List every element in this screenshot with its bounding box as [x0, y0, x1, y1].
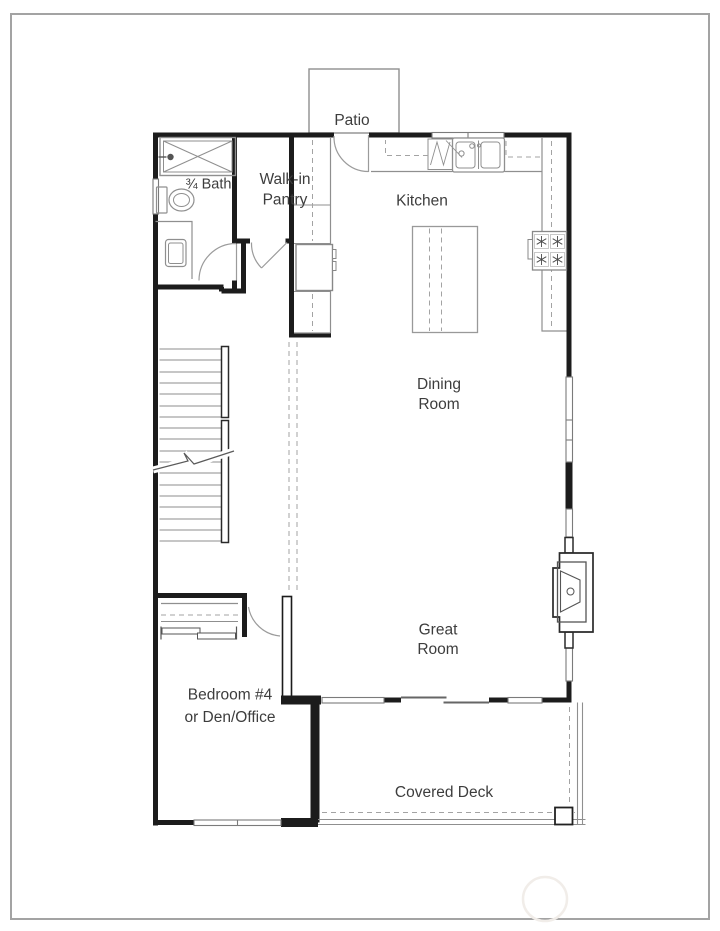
- bath-door: [199, 244, 237, 281]
- refrigerator-handle: [333, 250, 337, 259]
- left-cabinet-bank: [294, 137, 336, 333]
- bedroom-label-line1: Bedroom #4: [188, 687, 273, 704]
- patio-label: Patio: [334, 112, 369, 129]
- kitchen-island: [413, 227, 478, 333]
- kitchen-label: Kitchen: [396, 193, 448, 210]
- bedroom-corner-wall: [281, 818, 318, 827]
- covered-deck-outline: [318, 703, 586, 825]
- closet-door-panel: [198, 633, 236, 639]
- pantry-label-line1: Walk-in: [259, 171, 310, 188]
- stair-treads: [160, 349, 222, 541]
- great-room-side-window-2: [566, 648, 573, 681]
- kitchen-fixtures: [294, 137, 567, 333]
- dining-label-line1: Dining: [417, 376, 461, 393]
- pantry-label-line2: Pantry: [263, 192, 308, 209]
- range: [528, 232, 567, 271]
- stair-rail-upper: [222, 347, 229, 418]
- floor-plan-page: Patio ¾ Bath Walk-in Pantry Kitchen Dini…: [0, 0, 720, 931]
- great-room-label-line1: Great: [419, 622, 458, 639]
- shower: [159, 138, 236, 176]
- fireplace: [553, 538, 593, 649]
- shower-head-icon: [167, 154, 173, 160]
- bedroom-door: [249, 607, 281, 636]
- sliding-door: [401, 698, 489, 703]
- bedroom-closet: [161, 604, 238, 640]
- vanity: [156, 222, 193, 280]
- closet-door-panel: [162, 628, 200, 634]
- great-room-rear-window-2: [508, 698, 542, 704]
- patio-door: [334, 135, 369, 172]
- range-handle: [528, 240, 533, 260]
- floor-plan-drawing: Patio ¾ Bath Walk-in Pantry Kitchen Dini…: [0, 0, 720, 931]
- covered-deck-label: Covered Deck: [395, 784, 493, 801]
- deck-edge-wall: [311, 700, 320, 823]
- great-room-rear-window-1: [322, 698, 384, 704]
- refrigerator-handle: [333, 262, 337, 271]
- dining-label-line2: Room: [418, 396, 459, 413]
- bath-label: ¾ Bath: [186, 177, 232, 193]
- pantry-kitchen-wall: [289, 133, 331, 338]
- great-room-side-window-1: [566, 509, 573, 537]
- great-room-label-line2: Room: [417, 641, 458, 658]
- pantry-door: [251, 243, 287, 269]
- floor-opening-dashed: [289, 342, 297, 592]
- deck-post: [555, 808, 573, 825]
- bedroom-great-wall: [283, 597, 292, 698]
- bath-fixtures: [156, 138, 236, 280]
- refrigerator: [296, 245, 333, 291]
- staircase: [153, 347, 234, 543]
- bath-window: [153, 179, 159, 214]
- watermark-circle: [523, 877, 567, 921]
- kitchen-sink: [446, 138, 505, 172]
- bedroom-label-line2: or Den/Office: [184, 709, 275, 726]
- stair-rail-lower: [222, 421, 229, 543]
- page-frame: [11, 14, 709, 919]
